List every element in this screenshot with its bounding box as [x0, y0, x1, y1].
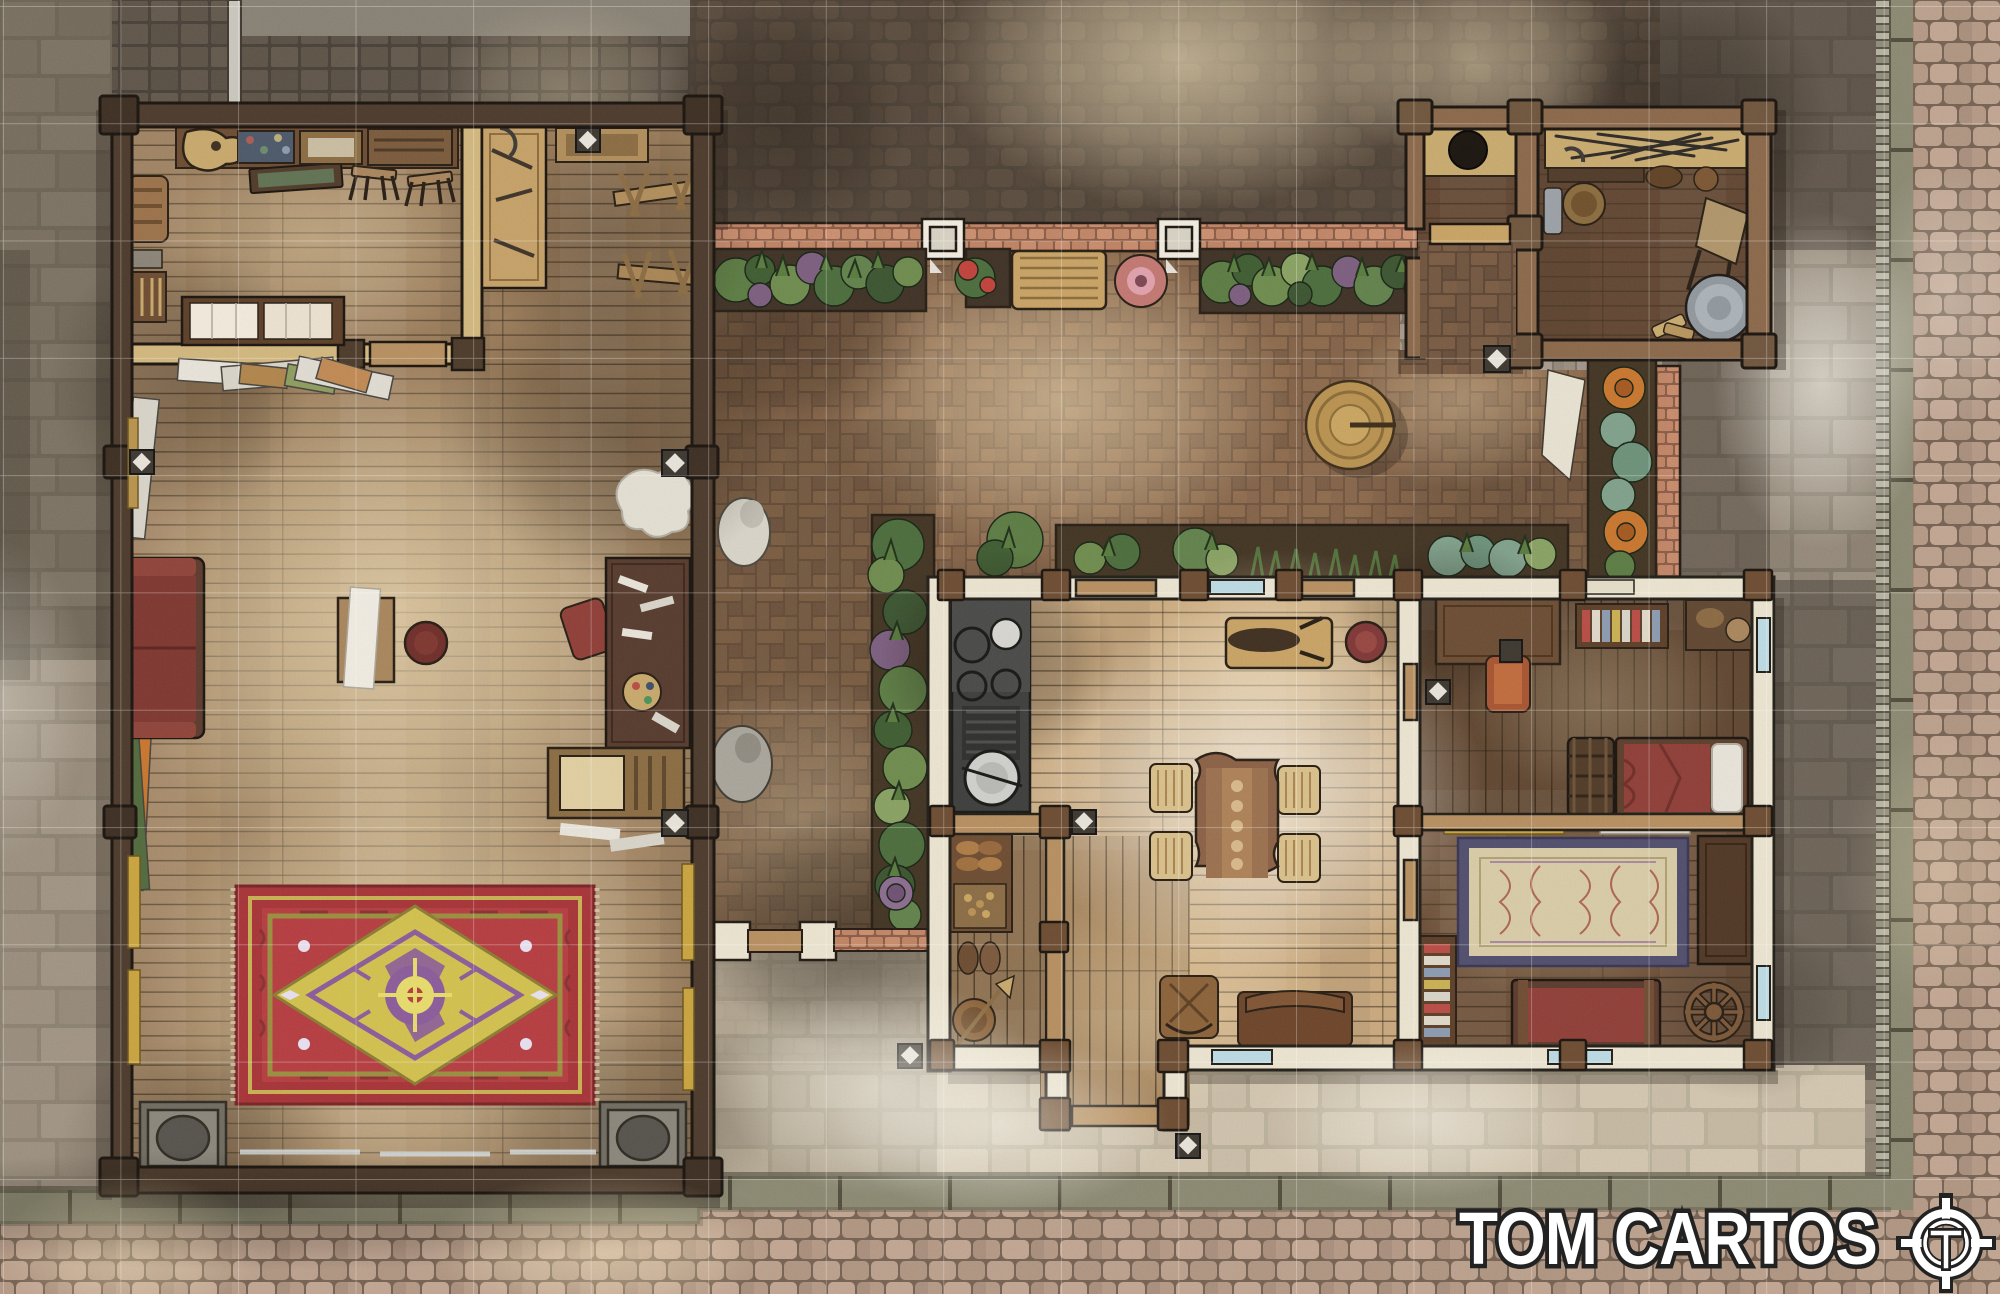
svg-text:TOM CARTOS: TOM CARTOS — [1459, 1197, 1877, 1280]
